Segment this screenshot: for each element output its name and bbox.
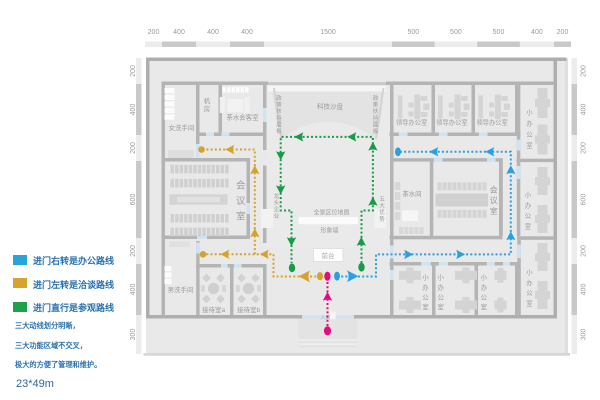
svg-text:全景区位地图: 全景区位地图 [313, 209, 349, 217]
svg-text:400: 400 [580, 284, 587, 296]
svg-text:形象墙: 形象墙 [320, 227, 338, 235]
svg-text:500: 500 [493, 29, 505, 36]
svg-text:五大优势: 五大优势 [379, 196, 385, 223]
svg-text:入口: 入口 [320, 315, 330, 321]
svg-text:400: 400 [130, 104, 137, 116]
svg-text:领导办公室: 领导办公室 [436, 118, 467, 127]
svg-text:400: 400 [173, 29, 185, 36]
svg-text:500: 500 [407, 29, 419, 36]
svg-text:接待室a: 接待室a [202, 305, 226, 314]
svg-text:200: 200 [580, 142, 587, 154]
svg-text:600: 600 [580, 194, 587, 206]
svg-text:男洗手间: 男洗手间 [168, 285, 194, 294]
svg-text:200: 200 [130, 245, 137, 257]
svg-text:领导办公室: 领导办公室 [476, 118, 507, 127]
svg-text:1500: 1500 [320, 29, 336, 36]
svg-text:400: 400 [241, 29, 253, 36]
svg-text:政策扶持展板: 政策扶持展板 [276, 94, 282, 135]
svg-text:机房: 机房 [204, 96, 211, 113]
svg-text:政策扶持展板: 政策扶持展板 [373, 94, 379, 135]
svg-text:接待室b: 接待室b [237, 305, 261, 314]
svg-text:300: 300 [130, 329, 137, 341]
svg-text:茶水间: 茶水间 [402, 189, 421, 198]
svg-text:200: 200 [557, 29, 569, 36]
svg-text:500: 500 [450, 29, 462, 36]
svg-text:领导办公室: 领导办公室 [396, 118, 427, 127]
svg-text:400: 400 [130, 284, 137, 296]
svg-text:200: 200 [130, 65, 137, 77]
svg-text:茶水会客室: 茶水会客室 [227, 113, 260, 122]
svg-text:龙头企业: 龙头企业 [274, 192, 280, 220]
svg-text:会议室: 会议室 [236, 180, 246, 223]
svg-text:前台: 前台 [322, 251, 335, 260]
svg-text:200: 200 [130, 142, 137, 154]
svg-text:400: 400 [207, 29, 219, 36]
svg-text:200: 200 [148, 29, 160, 36]
svg-text:200: 200 [580, 65, 587, 77]
svg-text:200: 200 [580, 245, 587, 257]
svg-text:400: 400 [580, 104, 587, 116]
svg-text:会议室: 会议室 [490, 185, 498, 216]
svg-text:科技沙盘: 科技沙盘 [317, 102, 344, 111]
svg-text:300: 300 [580, 329, 587, 341]
svg-text:600: 600 [130, 194, 137, 206]
svg-text:400: 400 [531, 29, 543, 36]
svg-text:女洗手间: 女洗手间 [169, 123, 195, 132]
